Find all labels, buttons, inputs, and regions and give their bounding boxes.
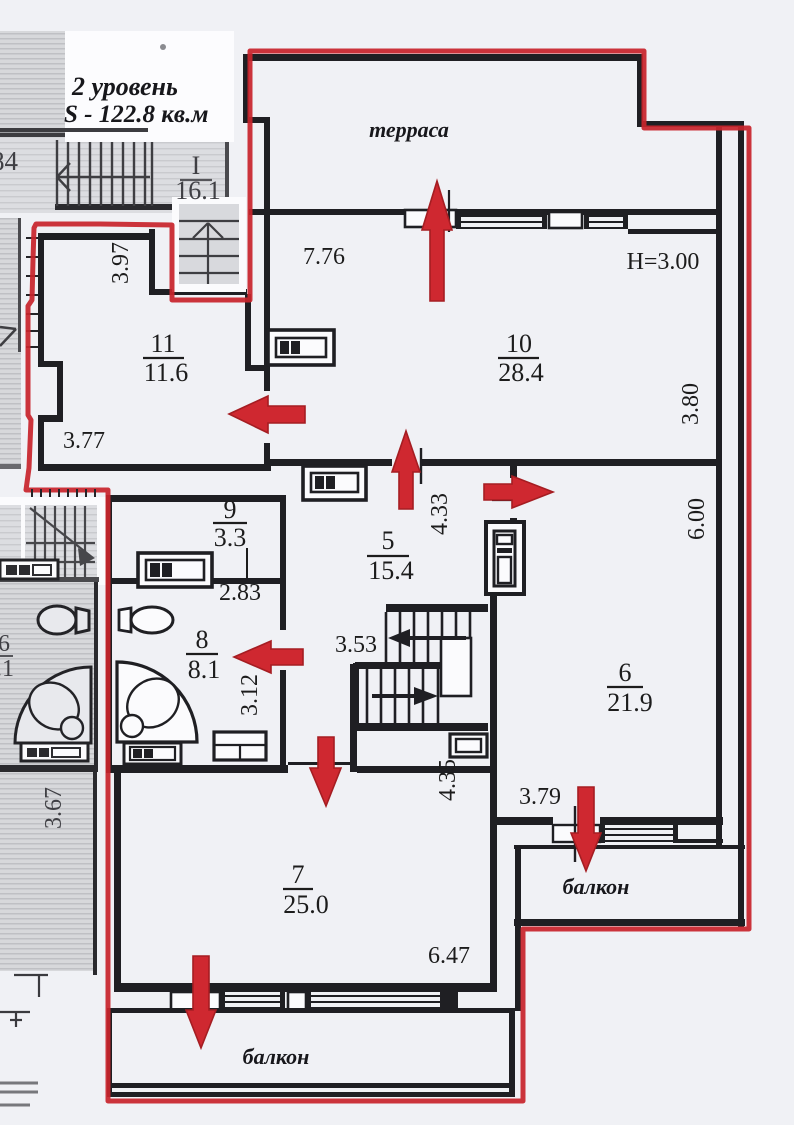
svg-text:6.47: 6.47 [428, 943, 470, 969]
svg-text:3.79: 3.79 [519, 784, 561, 810]
svg-text:9: 9 [224, 495, 237, 524]
svg-text:11.6: 11.6 [144, 358, 189, 387]
svg-text:10: 10 [506, 329, 532, 358]
svg-text:6: 6 [0, 631, 10, 657]
svg-text:16.1: 16.1 [175, 176, 221, 205]
svg-text:2 уровень: 2 уровень [71, 72, 178, 101]
svg-text:S - 122.8 кв.м: S - 122.8 кв.м [64, 101, 208, 128]
svg-text:6.00: 6.00 [684, 498, 710, 540]
svg-text:3.12: 3.12 [237, 674, 263, 716]
svg-text:.1: .1 [0, 656, 14, 682]
svg-text:3.80: 3.80 [678, 383, 704, 425]
svg-text:3.97: 3.97 [108, 242, 134, 284]
svg-text:4.33: 4.33 [427, 493, 453, 535]
svg-text:7.76: 7.76 [303, 244, 345, 270]
svg-text:балкон: балкон [243, 1044, 310, 1069]
svg-text:25.0: 25.0 [283, 890, 329, 919]
svg-text:7: 7 [292, 860, 305, 889]
svg-text:4.35: 4.35 [435, 759, 461, 801]
svg-text:2.83: 2.83 [219, 580, 261, 606]
svg-text:3.77: 3.77 [63, 428, 105, 454]
svg-text:11: 11 [150, 329, 175, 358]
svg-text:8.1: 8.1 [188, 655, 221, 684]
svg-text:Н=3.00: Н=3.00 [627, 249, 700, 275]
svg-text:3.67: 3.67 [41, 787, 67, 829]
svg-text:3.53: 3.53 [335, 632, 377, 658]
svg-text:терраса: терраса [369, 117, 449, 142]
svg-text:8: 8 [196, 625, 209, 654]
svg-text:балкон: балкон [563, 874, 630, 899]
svg-text:84: 84 [0, 146, 19, 176]
svg-text:21.9: 21.9 [607, 688, 653, 717]
svg-text:5: 5 [382, 526, 395, 555]
svg-text:6: 6 [619, 658, 632, 687]
svg-text:28.4: 28.4 [498, 358, 544, 387]
svg-text:3.3: 3.3 [214, 523, 247, 552]
svg-text:15.4: 15.4 [368, 556, 414, 585]
